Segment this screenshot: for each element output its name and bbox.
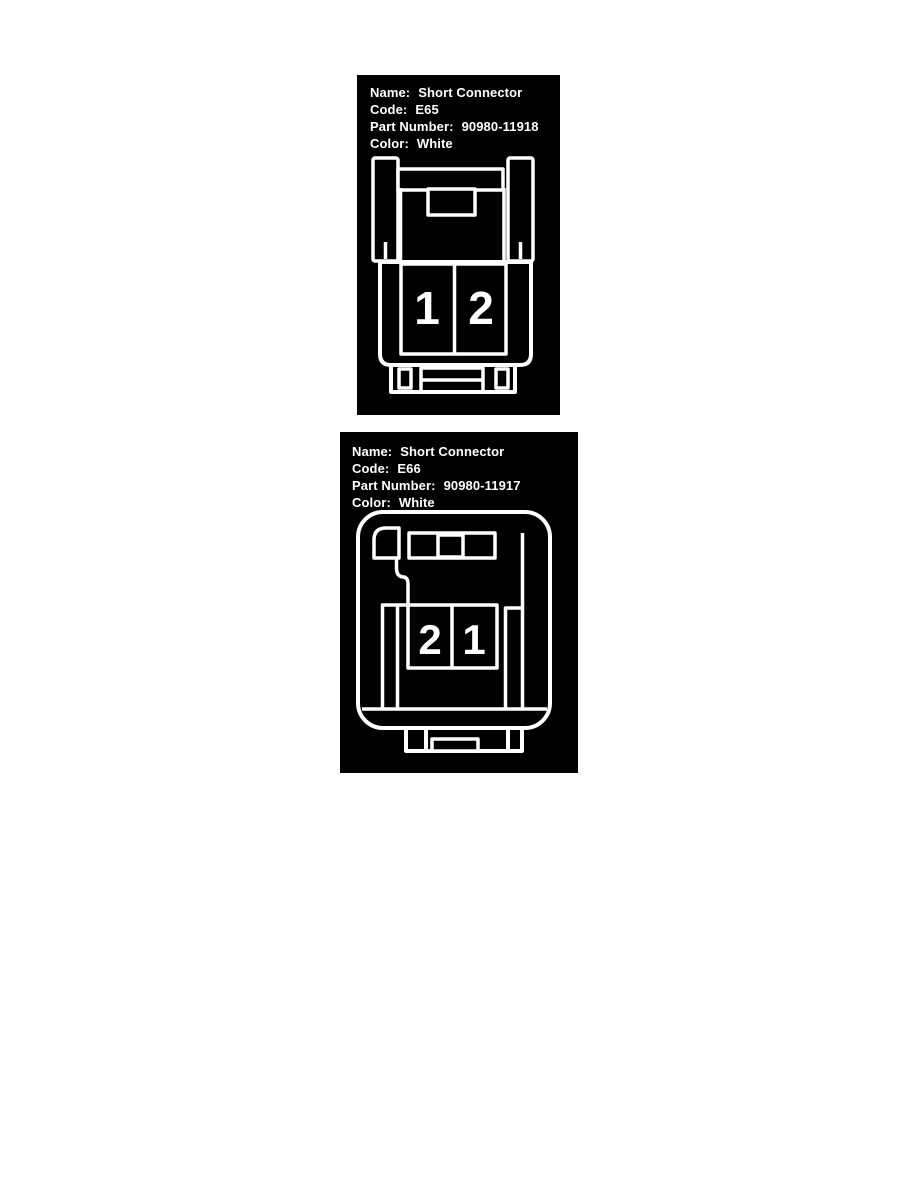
cavity-number-right: 1 bbox=[462, 616, 485, 663]
document-page: Name:Short Connector Code:E65 Part Numbe… bbox=[0, 0, 918, 1188]
base-center-tab bbox=[432, 739, 478, 751]
connector-panel-e66: Name:Short Connector Code:E66 Part Numbe… bbox=[340, 432, 578, 773]
cavity-number-right: 2 bbox=[468, 282, 494, 334]
base-slot-left bbox=[399, 369, 411, 388]
lock-tab bbox=[438, 535, 463, 557]
base-slot-right bbox=[496, 369, 508, 388]
corner-pocket bbox=[374, 528, 399, 558]
cavity-number-left: 1 bbox=[414, 282, 440, 334]
connector-diagram-e66: 2 1 bbox=[340, 432, 578, 773]
top-band bbox=[398, 169, 503, 190]
connector-panel-e65: Name:Short Connector Code:E65 Part Numbe… bbox=[357, 75, 560, 415]
lock-tab bbox=[428, 189, 475, 215]
connector-diagram-e65: 1 2 bbox=[357, 75, 560, 415]
cavity-number-left: 2 bbox=[418, 616, 441, 663]
